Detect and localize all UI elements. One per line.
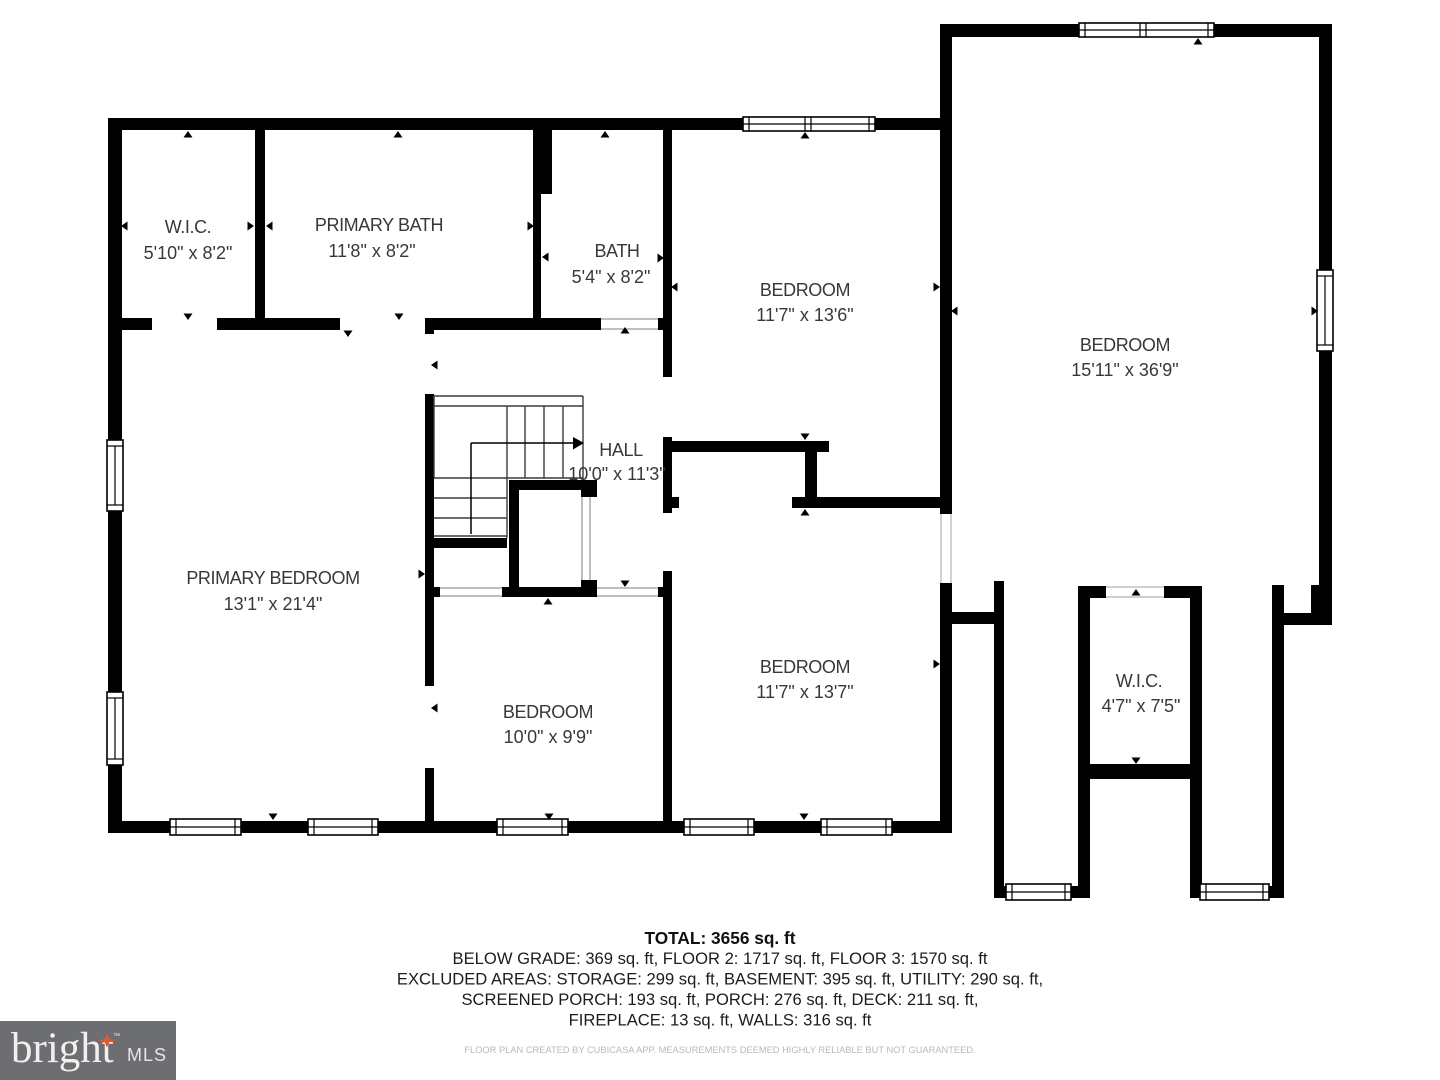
svg-text:13'1" x 21'4": 13'1" x 21'4" [224, 594, 323, 614]
svg-text:™: ™ [113, 1033, 120, 1040]
svg-text:5'10" x 8'2": 5'10" x 8'2" [144, 243, 233, 263]
svg-text:BEDROOM: BEDROOM [760, 280, 850, 300]
svg-text:FLOOR PLAN CREATED BY CUBICASA: FLOOR PLAN CREATED BY CUBICASA APP. MEAS… [464, 1045, 975, 1055]
svg-text:BATH: BATH [594, 241, 639, 261]
svg-text:5'4" x 8'2": 5'4" x 8'2" [572, 267, 651, 287]
svg-text:PRIMARY BEDROOM: PRIMARY BEDROOM [186, 568, 359, 588]
svg-text:MLS: MLS [127, 1045, 167, 1065]
svg-text:TOTAL: 3656 sq. ft: TOTAL: 3656 sq. ft [644, 928, 795, 948]
svg-text:FIREPLACE: 13 sq. ft, WALLS: 3: FIREPLACE: 13 sq. ft, WALLS: 316 sq. ft [569, 1011, 872, 1030]
svg-text:EXCLUDED AREAS: STORAGE: 299 s: EXCLUDED AREAS: STORAGE: 299 sq. ft, BAS… [397, 970, 1043, 989]
svg-text:BEDROOM: BEDROOM [503, 702, 593, 722]
svg-text:10'0" x 9'9": 10'0" x 9'9" [504, 727, 593, 747]
svg-text:10'0" x 11'3": 10'0" x 11'3" [568, 464, 665, 484]
svg-text:BEDROOM: BEDROOM [760, 657, 850, 677]
svg-text:11'8" x 8'2": 11'8" x 8'2" [328, 241, 415, 261]
svg-text:BELOW GRADE: 369 sq. ft, FLOOR: BELOW GRADE: 369 sq. ft, FLOOR 2: 1717 s… [453, 949, 988, 968]
svg-text:11'7" x 13'6": 11'7" x 13'6" [756, 305, 853, 325]
svg-text:11'7" x 13'7": 11'7" x 13'7" [756, 682, 853, 702]
svg-text:W.I.C.: W.I.C. [1116, 671, 1163, 691]
svg-text:SCREENED PORCH: 193 sq. ft, PO: SCREENED PORCH: 193 sq. ft, PORCH: 276 s… [461, 990, 978, 1009]
svg-text:4'7" x 7'5": 4'7" x 7'5" [1102, 696, 1181, 716]
svg-text:HALL: HALL [599, 440, 643, 460]
svg-text:bright: bright [11, 1025, 114, 1072]
svg-text:15'11" x 36'9": 15'11" x 36'9" [1071, 360, 1178, 380]
svg-text:PRIMARY BATH: PRIMARY BATH [315, 215, 443, 235]
svg-text:BEDROOM: BEDROOM [1080, 335, 1170, 355]
svg-text:W.I.C.: W.I.C. [165, 217, 212, 237]
